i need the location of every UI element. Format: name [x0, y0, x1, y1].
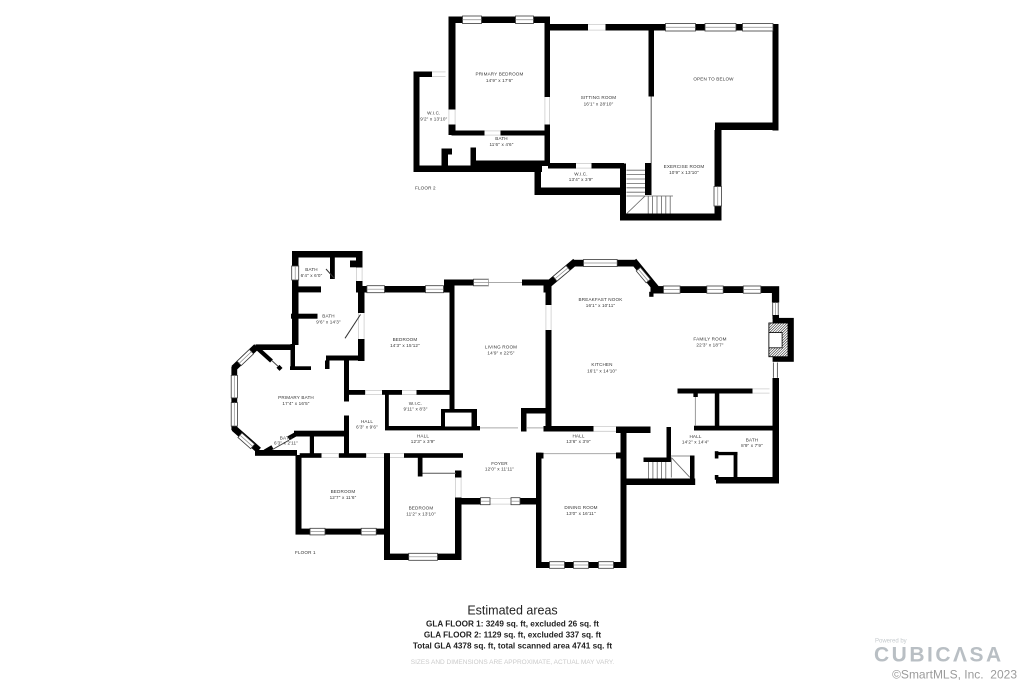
svg-text:BATH: BATH: [746, 438, 759, 443]
svg-text:HALL: HALL: [572, 434, 584, 439]
svg-text:BATH: BATH: [305, 267, 318, 272]
svg-text:12'7" x 11'6": 12'7" x 11'6": [330, 495, 357, 500]
svg-text:FAMILY ROOM: FAMILY ROOM: [693, 337, 726, 342]
svg-text:11'6" x 4'6": 11'6" x 4'6": [489, 142, 513, 147]
svg-text:BEDROOM: BEDROOM: [393, 337, 418, 342]
svg-text:DINING ROOM: DINING ROOM: [564, 505, 597, 510]
svg-text:13'4" x 3'9": 13'4" x 3'9": [569, 177, 594, 182]
svg-text:14'2" x 14'4": 14'2" x 14'4": [682, 440, 709, 445]
svg-text:GLA FLOOR 1: 3249 sq. ft, excl: GLA FLOOR 1: 3249 sq. ft, excluded 26 sq…: [426, 620, 599, 629]
svg-text:14'9" x 17'6": 14'9" x 17'6": [486, 78, 513, 83]
svg-text:SIZES AND DIMENSIONS ARE APPRO: SIZES AND DIMENSIONS ARE APPROXIMATE, AC…: [411, 659, 615, 666]
svg-text:LIVING ROOM: LIVING ROOM: [485, 345, 517, 350]
svg-text:FOYER: FOYER: [491, 461, 508, 466]
svg-text:W.I.C.: W.I.C.: [427, 111, 440, 116]
svg-text:14'3" x 15'12": 14'3" x 15'12": [390, 343, 420, 348]
svg-text:16'1" x 28'10": 16'1" x 28'10": [584, 102, 614, 107]
svg-text:HALL: HALL: [417, 434, 429, 439]
svg-text:13'6" x 3'9": 13'6" x 3'9": [566, 439, 591, 444]
svg-text:BEDROOM: BEDROOM: [409, 506, 434, 511]
svg-text:GLA FLOOR 2: 1129 sq. ft, excl: GLA FLOOR 2: 1129 sq. ft, excluded 337 s…: [424, 631, 601, 640]
svg-text:16'1" x 10'11": 16'1" x 10'11": [586, 303, 616, 308]
svg-text:6'3" x 9'6": 6'3" x 9'6": [356, 425, 378, 430]
svg-text:8'9" x 7'9": 8'9" x 7'9": [741, 443, 763, 448]
svg-text:6'4" x 6'0": 6'4" x 6'0": [301, 273, 323, 278]
svg-text:13'0" x 16'11": 13'0" x 16'11": [566, 511, 596, 516]
svg-text:BATH: BATH: [322, 314, 335, 319]
svg-text:©SmartMLS, Inc. 2023: ©SmartMLS, Inc. 2023: [892, 668, 1017, 682]
svg-text:KITCHEN: KITCHEN: [591, 362, 612, 367]
svg-text:Estimated areas: Estimated areas: [467, 604, 557, 618]
svg-text:FLOOR 2: FLOOR 2: [415, 186, 436, 191]
svg-text:PRIMARY BATH: PRIMARY BATH: [278, 395, 314, 400]
svg-text:Total GLA 4378 sq. ft, total s: Total GLA 4378 sq. ft, total scanned are…: [413, 642, 613, 651]
svg-text:12'0" x 11'11": 12'0" x 11'11": [485, 467, 514, 472]
svg-text:OPEN TO BELOW: OPEN TO BELOW: [693, 77, 734, 82]
svg-text:10'9" x 13'10": 10'9" x 13'10": [669, 170, 699, 175]
svg-text:17'4" x 16'5": 17'4" x 16'5": [282, 401, 309, 406]
svg-text:6'3" x 2'11": 6'3" x 2'11": [274, 441, 298, 446]
svg-text:BREAKFAST NOOK: BREAKFAST NOOK: [579, 297, 624, 302]
svg-text:HALL: HALL: [689, 434, 701, 439]
svg-text:SITTING ROOM: SITTING ROOM: [581, 95, 617, 100]
svg-text:22'3" x 18'7": 22'3" x 18'7": [696, 343, 723, 348]
svg-text:9'6" x 14'3": 9'6" x 14'3": [316, 320, 341, 325]
svg-text:9'2" x 13'10": 9'2" x 13'10": [420, 117, 447, 122]
svg-text:W.I.C.: W.I.C.: [409, 401, 422, 406]
svg-text:12'3" x 3'9": 12'3" x 3'9": [411, 439, 436, 444]
svg-text:W.I.C.: W.I.C.: [574, 172, 587, 177]
svg-text:11'2" x 13'10": 11'2" x 13'10": [406, 512, 436, 517]
svg-text:PRIMARY BEDROOM: PRIMARY BEDROOM: [475, 72, 523, 77]
svg-text:BEDROOM: BEDROOM: [331, 489, 356, 494]
svg-text:9'11" x 8'3": 9'11" x 8'3": [403, 407, 427, 412]
svg-text:14'9" x 22'5": 14'9" x 22'5": [487, 351, 514, 356]
svg-text:HALL: HALL: [361, 419, 373, 424]
svg-text:BATH: BATH: [495, 136, 508, 141]
svg-text:FLOOR 1: FLOOR 1: [295, 550, 316, 555]
svg-text:CUBICΛSA: CUBICΛSA: [874, 644, 1004, 667]
svg-text:16'1" x 14'10": 16'1" x 14'10": [587, 369, 617, 374]
svg-text:EXERCISE ROOM: EXERCISE ROOM: [664, 164, 705, 169]
